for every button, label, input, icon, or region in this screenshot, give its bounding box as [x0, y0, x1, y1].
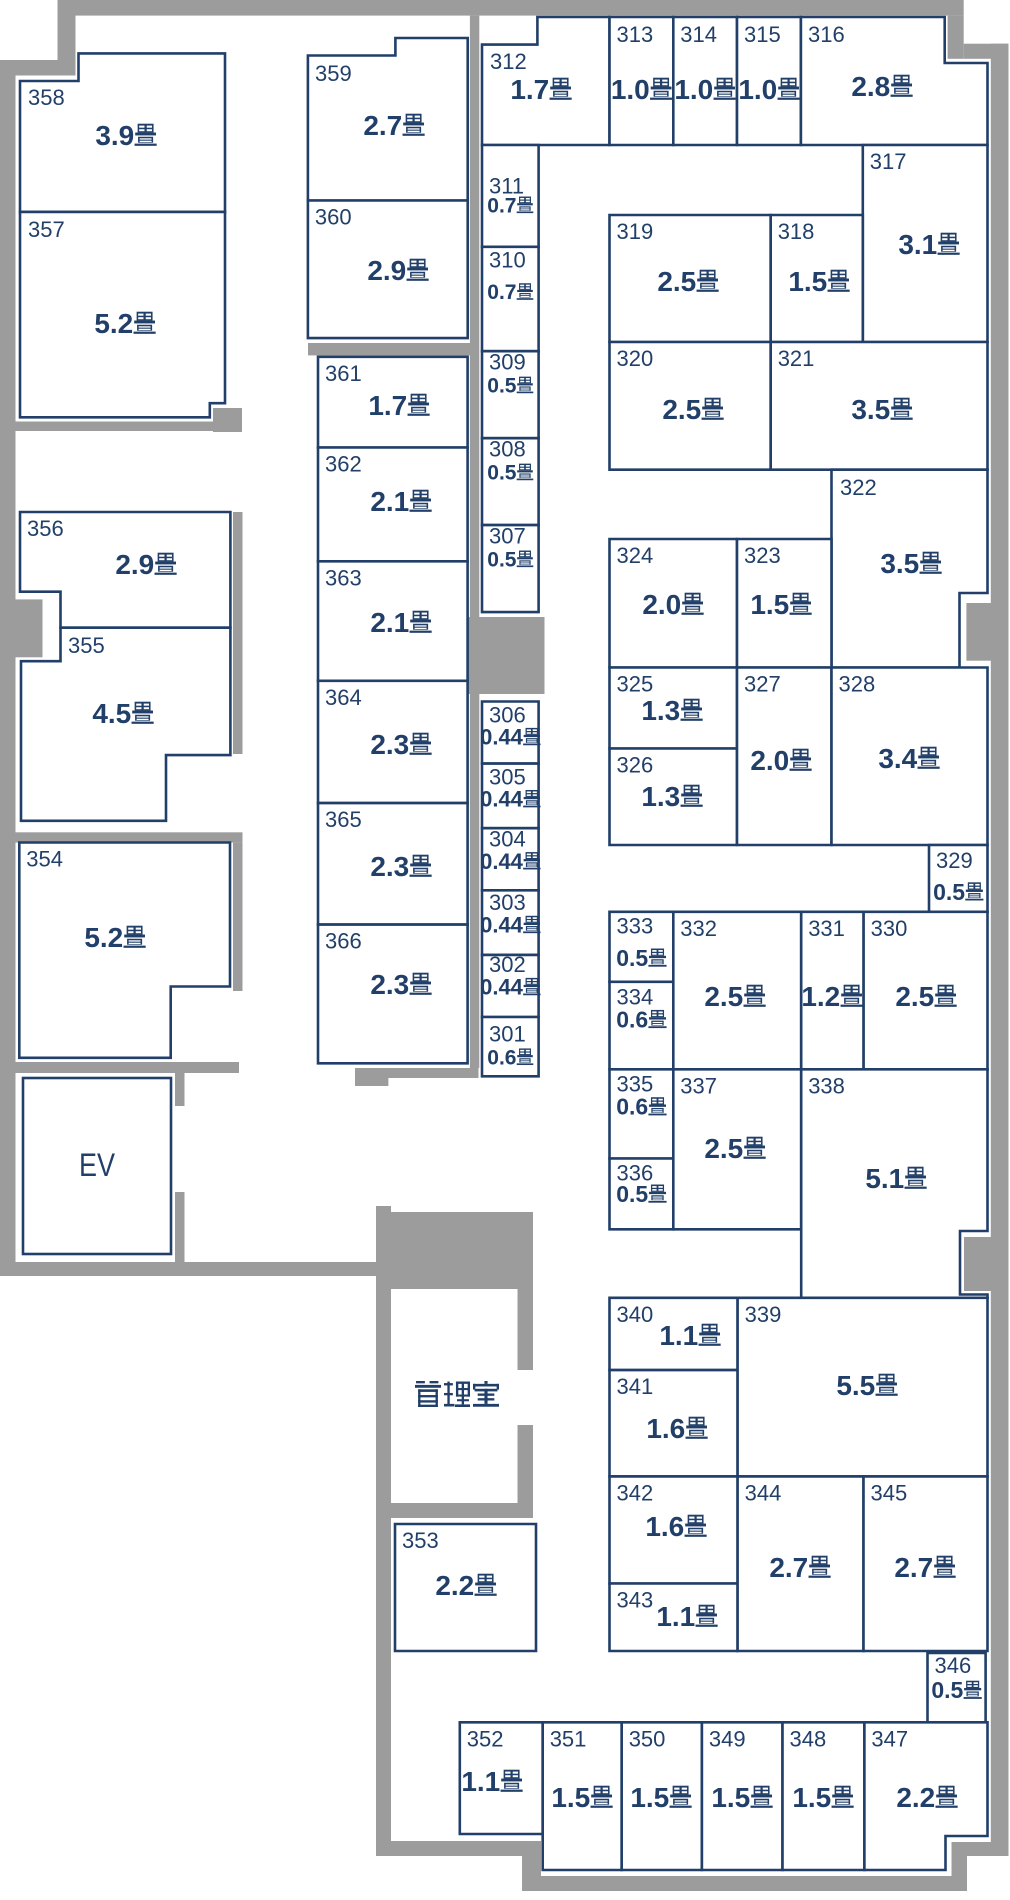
svg-text:321: 321	[778, 346, 815, 371]
svg-text:0.44: 0.44	[480, 849, 524, 874]
svg-text:1.5: 1.5	[630, 1782, 669, 1813]
svg-text:317: 317	[870, 149, 907, 174]
svg-text:333: 333	[617, 914, 654, 939]
svg-text:315: 315	[744, 22, 781, 47]
svg-text:364: 364	[325, 685, 362, 710]
svg-text:0.44: 0.44	[480, 975, 524, 1000]
svg-text:362: 362	[325, 452, 362, 477]
svg-text:301: 301	[489, 1021, 526, 1046]
svg-text:308: 308	[489, 436, 526, 461]
svg-text:0.5: 0.5	[616, 1181, 648, 1207]
svg-text:306: 306	[489, 702, 526, 727]
svg-text:323: 323	[744, 543, 781, 568]
svg-text:2.8: 2.8	[851, 71, 890, 102]
svg-text:5.5: 5.5	[836, 1370, 875, 1401]
svg-text:2.5: 2.5	[662, 394, 701, 425]
svg-text:0.7: 0.7	[487, 195, 516, 218]
svg-text:353: 353	[402, 1528, 439, 1553]
svg-text:0.44: 0.44	[480, 787, 524, 812]
svg-text:314: 314	[680, 22, 717, 47]
svg-text:303: 303	[489, 890, 526, 915]
svg-text:1.5: 1.5	[792, 1782, 831, 1813]
svg-text:1.6: 1.6	[645, 1511, 684, 1542]
svg-text:1.1: 1.1	[461, 1766, 500, 1797]
svg-text:0.44: 0.44	[480, 725, 524, 750]
svg-text:358: 358	[28, 85, 65, 110]
svg-text:1.5: 1.5	[551, 1782, 590, 1813]
svg-text:2.2: 2.2	[435, 1570, 474, 1601]
svg-text:2.1: 2.1	[370, 486, 409, 517]
svg-text:305: 305	[489, 764, 526, 789]
svg-text:355: 355	[68, 633, 105, 658]
svg-text:1.6: 1.6	[646, 1413, 685, 1444]
svg-text:346: 346	[935, 1653, 972, 1678]
svg-text:0.5: 0.5	[931, 1677, 963, 1703]
svg-text:1.5: 1.5	[711, 1782, 750, 1813]
svg-text:359: 359	[315, 61, 352, 86]
svg-text:2.2: 2.2	[896, 1782, 935, 1813]
svg-text:332: 332	[680, 916, 717, 941]
svg-text:3.9: 3.9	[95, 120, 134, 151]
svg-text:2.3: 2.3	[370, 969, 409, 1000]
svg-text:0.5: 0.5	[487, 375, 517, 398]
svg-text:0.6: 0.6	[487, 1046, 516, 1069]
svg-text:3.5: 3.5	[851, 394, 890, 425]
svg-text:EV: EV	[79, 1147, 116, 1183]
svg-text:2.9: 2.9	[367, 255, 406, 286]
svg-text:326: 326	[617, 753, 654, 778]
svg-text:327: 327	[744, 672, 781, 697]
svg-text:2.7: 2.7	[769, 1552, 808, 1583]
svg-text:3.4: 3.4	[878, 743, 917, 774]
svg-text:310: 310	[489, 248, 526, 273]
svg-text:0.6: 0.6	[616, 1094, 648, 1120]
svg-text:0.6: 0.6	[616, 1006, 648, 1032]
svg-text:0.7: 0.7	[487, 281, 516, 304]
svg-text:342: 342	[617, 1480, 654, 1505]
svg-text:340: 340	[617, 1302, 654, 1327]
svg-text:320: 320	[617, 346, 654, 371]
svg-text:319: 319	[617, 219, 654, 244]
svg-text:357: 357	[28, 217, 65, 242]
svg-text:325: 325	[617, 672, 654, 697]
svg-text:341: 341	[617, 1374, 654, 1399]
svg-text:5.2: 5.2	[84, 922, 123, 953]
svg-text:366: 366	[325, 929, 362, 954]
svg-text:322: 322	[840, 475, 877, 500]
svg-text:329: 329	[936, 848, 973, 873]
svg-text:363: 363	[325, 565, 362, 590]
svg-text:309: 309	[489, 349, 526, 374]
svg-text:1.3: 1.3	[641, 781, 680, 812]
svg-text:1.1: 1.1	[656, 1601, 695, 1632]
svg-text:304: 304	[489, 827, 526, 852]
svg-text:328: 328	[839, 672, 876, 697]
svg-text:331: 331	[808, 916, 845, 941]
svg-text:349: 349	[709, 1726, 746, 1751]
svg-text:2.5: 2.5	[704, 981, 743, 1012]
svg-text:2.3: 2.3	[370, 851, 409, 882]
svg-text:3.1: 3.1	[898, 229, 937, 260]
svg-text:1.7: 1.7	[368, 390, 407, 421]
svg-text:347: 347	[871, 1726, 908, 1751]
svg-text:0.5: 0.5	[487, 549, 517, 572]
svg-text:338: 338	[808, 1073, 845, 1098]
svg-text:324: 324	[617, 543, 654, 568]
svg-text:350: 350	[629, 1726, 666, 1751]
svg-text:0.5: 0.5	[487, 462, 517, 485]
svg-text:2.5: 2.5	[895, 981, 934, 1012]
svg-text:2.7: 2.7	[894, 1552, 933, 1583]
svg-text:330: 330	[871, 916, 908, 941]
svg-text:5.2: 5.2	[94, 308, 133, 339]
svg-text:2.5: 2.5	[657, 266, 696, 297]
svg-text:339: 339	[745, 1302, 782, 1327]
svg-text:2.0: 2.0	[750, 745, 789, 776]
svg-text:2.5: 2.5	[704, 1133, 743, 1164]
svg-text:307: 307	[489, 523, 526, 548]
svg-text:0.5: 0.5	[616, 945, 648, 971]
svg-text:5.1: 5.1	[865, 1163, 904, 1194]
svg-text:345: 345	[871, 1480, 908, 1505]
svg-text:361: 361	[325, 361, 362, 386]
svg-text:316: 316	[808, 22, 845, 47]
svg-text:1.5: 1.5	[750, 589, 789, 620]
svg-text:0.5: 0.5	[933, 879, 965, 905]
svg-text:2.0: 2.0	[642, 589, 681, 620]
svg-text:313: 313	[617, 22, 654, 47]
svg-text:352: 352	[467, 1726, 504, 1751]
svg-text:2.9: 2.9	[115, 549, 154, 580]
svg-text:2.7: 2.7	[363, 110, 402, 141]
svg-text:1.1: 1.1	[659, 1320, 698, 1351]
svg-text:4.5: 4.5	[92, 698, 131, 729]
svg-text:1.0: 1.0	[674, 74, 713, 105]
svg-text:3.5: 3.5	[880, 548, 919, 579]
svg-text:1.5: 1.5	[788, 266, 827, 297]
svg-text:1.3: 1.3	[641, 695, 680, 726]
svg-text:2.1: 2.1	[370, 607, 409, 638]
svg-text:1.0: 1.0	[611, 74, 650, 105]
svg-text:356: 356	[27, 516, 64, 541]
svg-text:1.2: 1.2	[801, 981, 840, 1012]
svg-text:1.0: 1.0	[738, 74, 777, 105]
svg-text:318: 318	[778, 219, 815, 244]
svg-text:354: 354	[26, 847, 63, 872]
svg-text:337: 337	[680, 1073, 717, 1098]
svg-text:365: 365	[325, 807, 362, 832]
svg-text:351: 351	[550, 1726, 587, 1751]
svg-text:1.7: 1.7	[510, 74, 549, 105]
svg-text:343: 343	[617, 1588, 654, 1613]
svg-text:2.3: 2.3	[370, 729, 409, 760]
svg-text:0.44: 0.44	[480, 913, 524, 938]
svg-text:344: 344	[745, 1480, 782, 1505]
svg-text:360: 360	[315, 205, 352, 230]
svg-text:302: 302	[489, 952, 526, 977]
svg-text:348: 348	[790, 1726, 827, 1751]
svg-text:312: 312	[490, 49, 527, 74]
